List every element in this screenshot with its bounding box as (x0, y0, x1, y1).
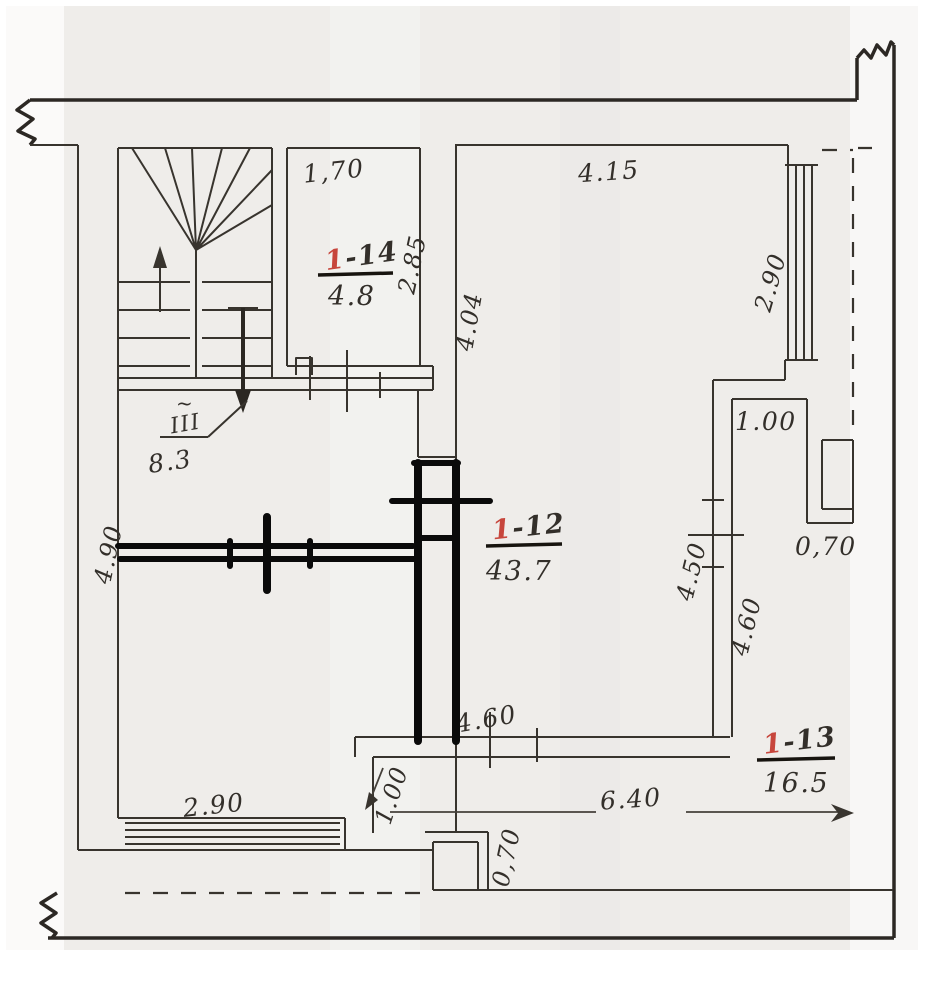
room-number-rest: -13 (781, 721, 838, 758)
dim-640-label: 6.40 (599, 783, 663, 816)
room-area-1-13: 16.5 (763, 768, 829, 799)
room-area-1-12: 43.7 (485, 556, 552, 587)
room-number-rest: -12 (511, 508, 567, 544)
room-area-1-14: 4.8 (327, 281, 375, 312)
dim-070-niche-label: 0,70 (795, 532, 857, 561)
floor-plan-drawing: 1,70 2.85 4.15 2.90 4.04 1.00 4.50 4.60 … (0, 0, 930, 986)
fraction-bar (757, 758, 835, 760)
floor-plan-scan: 1,70 2.85 4.15 2.90 4.04 1.00 4.50 4.60 … (0, 0, 930, 986)
dim-415-label: 4.15 (576, 155, 641, 188)
stair-area-label: 8.3 (146, 444, 194, 479)
fraction-bar (486, 544, 562, 546)
paper-streak-left (6, 6, 64, 950)
dim-100-shaft-label: 1.00 (735, 407, 797, 436)
fraction-bar (318, 273, 393, 275)
